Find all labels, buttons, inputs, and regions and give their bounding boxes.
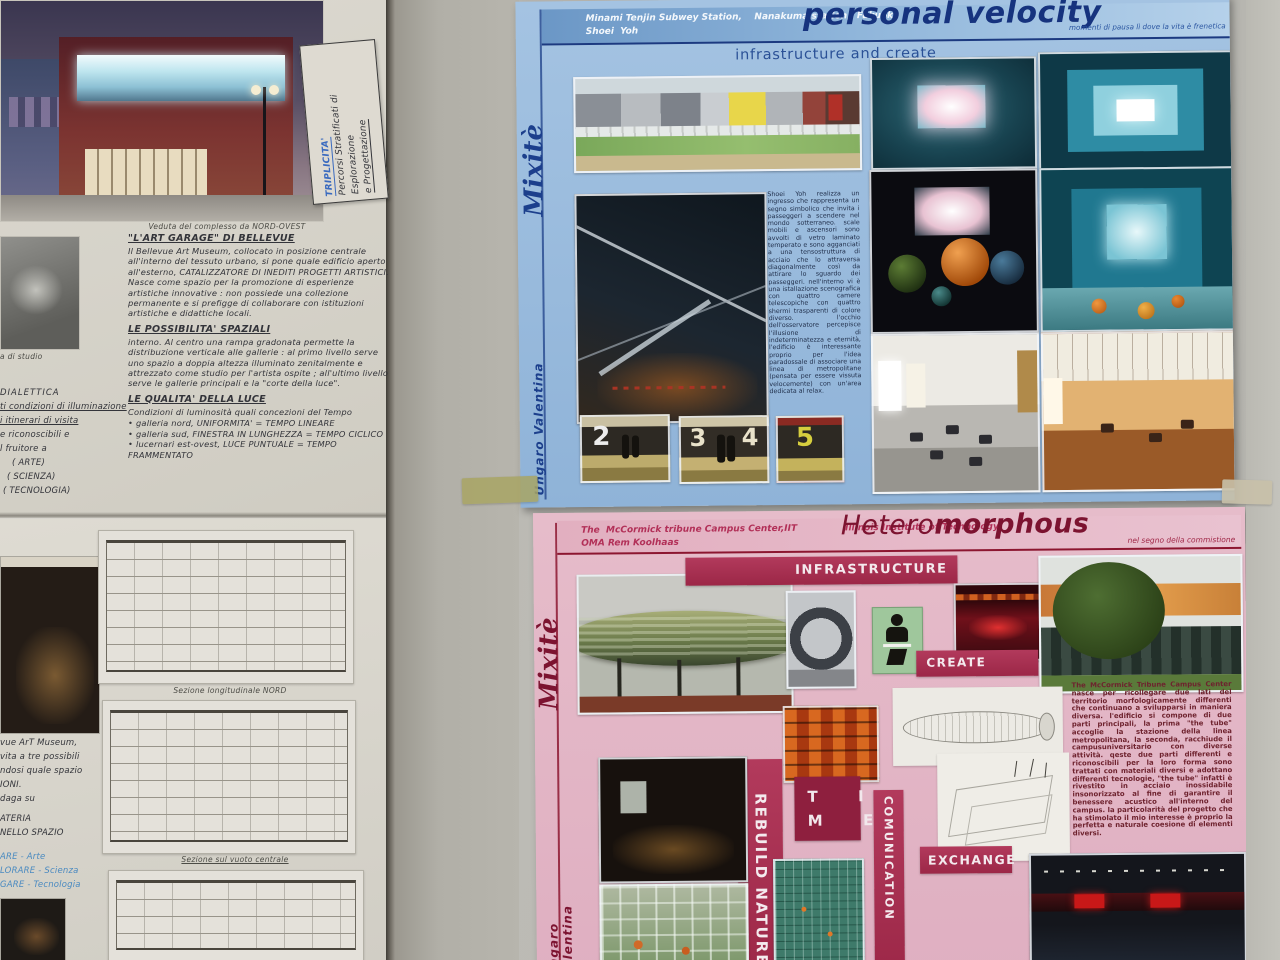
platform-photo-3-4: 3 4: [679, 415, 770, 484]
edge-fragment: i itinerari di visita: [0, 414, 134, 428]
bellevue-photo-caption: Veduta del complesso da NORD-OVEST: [122, 222, 332, 231]
bright-window: [914, 187, 990, 236]
triplicita-note-card: TRIPLICITA' Percorsi Stratificati di Esp…: [299, 39, 389, 205]
chair-silhouette: [1181, 420, 1194, 429]
table-reflections: [612, 824, 734, 874]
corridor-balls-photo: [1039, 166, 1234, 332]
masking-tape-left: [462, 476, 539, 505]
arch-ring: [786, 604, 857, 674]
blue-fragment: ARE - Arte: [0, 850, 120, 864]
platform-photo-5: 5: [776, 415, 845, 483]
orange-detail: [682, 947, 690, 955]
title-bold: morphous: [934, 508, 1089, 540]
person-silhouette: [621, 434, 628, 458]
edge-fragment: DIALETTICA: [0, 386, 134, 400]
orange-sphere: [941, 238, 990, 287]
station-line-2: Shoei Yoh: [586, 26, 639, 37]
bellevue-museum-photo: [0, 0, 324, 222]
tunnel-core: [1116, 99, 1154, 122]
chair-silhouette: [946, 426, 959, 435]
blue-poster: Minami Tenjin Subwey Station, Nanakuma s…: [515, 0, 1234, 508]
comunication-banner: COMUNICATION: [873, 790, 905, 960]
tube-ribs: [579, 616, 791, 659]
board-edge-shadow: [386, 0, 395, 960]
tube-arch-photo: [786, 590, 857, 689]
pictogram-desk: [883, 644, 911, 647]
orange-lounge-photo: [1041, 330, 1235, 492]
notes-para-spazi: interno. Al centro una rampa gradonata p…: [128, 337, 392, 389]
comunication-label: COMUNICATION: [881, 796, 896, 921]
lower-fragment: daga su: [0, 792, 120, 806]
exchange-label: EXCHANGE: [928, 852, 1016, 868]
blue-author-label: Ungaro Valentina: [531, 353, 546, 495]
spheres-installation-photo: [869, 168, 1039, 334]
buildings-row: [575, 91, 859, 129]
platform-number: 5: [796, 423, 814, 453]
notes-heading-art-garage: "L'ART GARAGE" DI BELLEVUE: [128, 233, 392, 244]
wood-wall: [1017, 350, 1037, 413]
museum-interior-photo: [0, 556, 100, 734]
pink-poster: The McCormick tribune Campus Center,IIT …: [533, 507, 1249, 960]
create-label: CREATE: [926, 655, 986, 670]
iit-store-photo: [1029, 852, 1247, 960]
lower-blue-fragments: ARE - Arte LORARE - Scienza GARE - Tecno…: [0, 850, 120, 892]
section-caption-2: Sezione sul vuoto centrale: [125, 855, 345, 864]
sketch-end-cap: [1039, 713, 1055, 741]
street-lamp-pole: [263, 87, 266, 211]
pictogram-head: [891, 614, 903, 626]
notes-bullet-1: galleria nord, UNIFORMITA' = TEMPO LINEA…: [128, 418, 392, 428]
rebuild-nature-label: REBUILD NATURE: [751, 793, 771, 960]
red-glow: [968, 614, 1027, 640]
iit-logo-mark: [1074, 894, 1104, 908]
notes-heading-luce: LE QUALITA' DELLA LUCE: [128, 394, 392, 405]
teal-sphere: [931, 286, 951, 306]
pink-body-text: The McCormick Tribune Campus Center nasc…: [1071, 681, 1232, 852]
glowing-window-photo: [870, 56, 1037, 170]
orange-dot: [828, 931, 833, 936]
project-line-2: OMA Rem Koolhaas: [581, 538, 679, 549]
section-linework: [116, 880, 356, 950]
edge-fragment: l fruitore a: [0, 442, 134, 456]
notes-para-art-garage: Il Bellevue Art Museum, collocato in pos…: [128, 246, 392, 319]
foreground-ground: [576, 153, 860, 171]
board-seam: [0, 512, 388, 519]
chair-silhouette: [969, 457, 982, 466]
sketch-spike: [1014, 761, 1017, 777]
lower-fragment: ndosi quale spazio: [0, 764, 120, 778]
warm-glow: [16, 627, 94, 724]
ground-band: [788, 669, 854, 686]
create-banner: CREATE: [916, 650, 1038, 677]
pink-poster-title: Heteromorphous: [841, 508, 1090, 541]
blue-body-text: Shoei Yoh realizza un ingresso che rappr…: [767, 190, 861, 409]
lamp-globe-right: [269, 85, 279, 95]
ceiling-light-band: [1, 557, 99, 567]
person-silhouette: [632, 436, 639, 458]
title-regular: Hetero: [841, 510, 935, 542]
back-window: [621, 781, 647, 813]
pink-side-label: Mixitè: [533, 555, 564, 710]
pink-header-band: The McCormick tribune Campus Center,IIT …: [557, 515, 1241, 555]
sketch-spike: [1029, 759, 1034, 777]
infrastructure-banner: INFRASTRUCTURE: [685, 555, 957, 585]
project-line-1: The McCormick tribune Campus Center,IIT: [581, 524, 797, 536]
ceiling-lights: [1044, 869, 1231, 873]
edge-fragment: ti condizioni di illuminazione: [0, 400, 134, 414]
time-tile: T I M E: [794, 776, 861, 841]
chair-silhouette: [930, 451, 943, 460]
lower-fragments: vue ArT Museum, vita a tre possibili ndo…: [0, 736, 120, 840]
section-drawing-2: [102, 700, 356, 854]
blue-side-label: Mixitè: [518, 51, 550, 216]
street-ground: [1, 195, 323, 221]
platform-number: 3: [689, 424, 706, 452]
green-sphere: [888, 255, 926, 293]
iit-logo-mark: [1151, 893, 1181, 907]
section-caption-1: Sezione longitudinale NORD: [120, 686, 340, 695]
handwritten-notes: "L'ART GARAGE" DI BELLEVUE Il Bellevue A…: [128, 233, 392, 460]
blue-header-band: Minami Tenjin Subwey Station, Nanakuma s…: [541, 2, 1229, 45]
notes-bullet-3: lucernari est-ovest, LUCE PUNTUALE = TEM…: [128, 439, 392, 460]
section-linework: [106, 540, 346, 672]
edge-fragment: e riconoscibili e: [0, 428, 134, 442]
pictogram-legs: [886, 649, 907, 665]
red-light-band: [1031, 891, 1244, 912]
warm-glow: [14, 918, 59, 955]
lower-fragment: IONI.: [0, 778, 120, 792]
notes-bullet-2: galleria sud, FINESTRA IN LUNGHEZZA = TE…: [128, 429, 392, 439]
bright-window: [918, 85, 986, 129]
lower-fragment: vita a tre possibili: [0, 750, 120, 764]
section-drawing-3: [108, 870, 364, 960]
blue-fragment: LORARE - Scienza: [0, 864, 120, 878]
tree-courtyard-photo: [1038, 554, 1243, 694]
time-line-1: T I: [807, 784, 860, 808]
lamp-globe-left: [251, 85, 261, 95]
person-silhouette: [717, 434, 725, 462]
chair-silhouette: [910, 432, 923, 441]
edge-fragment: ( ARTE): [0, 456, 134, 470]
ceiling-stripe: [956, 594, 1040, 601]
chair-silhouette: [1101, 424, 1114, 433]
person-silhouette: [727, 435, 735, 461]
blue-poster-title: personal velocity: [803, 0, 1102, 33]
pink-poster-tagline: nel segno della commistione: [1128, 535, 1236, 545]
green-media-wall-photo: [773, 858, 865, 960]
greenhouse-photo: [599, 883, 749, 960]
white-lounge-photo: [871, 332, 1041, 494]
light-tunnel-photo: [1038, 50, 1233, 170]
edge-fragment: ( TECNOLOGIA): [0, 484, 134, 498]
chair-silhouette: [979, 435, 992, 444]
lower-fragment: NELLO SPAZIO: [0, 826, 120, 840]
ceiling-grid: [1043, 332, 1233, 381]
orange-dot: [802, 907, 807, 912]
infrastructure-label: INFRASTRUCTURE: [795, 562, 947, 578]
window-glow: [878, 361, 901, 411]
corridor-end-glow: [1106, 204, 1167, 259]
study-model-photo: [0, 236, 80, 350]
escalator-hall-photo: [574, 192, 768, 424]
notes-para-luce: Condizioni di luminosità quali concezion…: [128, 407, 392, 417]
edge-fragment: ( SCIENZA): [0, 470, 134, 484]
tube-building-photo: [577, 573, 794, 715]
sketch-cylinder: [903, 711, 1051, 744]
exchange-banner: EXCHANGE: [920, 846, 1012, 874]
platform-number: 4: [742, 424, 759, 452]
photo-of-presentation-wall: Veduta del complesso da NORD-OVEST TRIPL…: [0, 0, 1280, 960]
blue-sphere: [990, 250, 1024, 284]
orange-detail: [634, 940, 643, 949]
edge-fragments: DIALETTICA ti condizioni di illuminazion…: [0, 386, 134, 498]
blue-poster-tagline: momenti di pausa lì dove la vita è frene…: [1069, 21, 1226, 32]
platform-photo-2: 2: [580, 414, 671, 483]
pink-author-label: Ungaro Valentina: [546, 858, 575, 960]
window-glow: [1043, 378, 1062, 425]
tree-canopy: [1052, 562, 1165, 659]
street-panorama-photo: [573, 74, 862, 173]
pictogram-body: [886, 627, 908, 642]
window-glow: [906, 364, 926, 408]
orange-window-photo: [783, 705, 880, 783]
time-line-2: M E: [808, 808, 861, 832]
red-signage: [828, 95, 842, 121]
dark-interior-photo: [598, 756, 748, 883]
model-caption-fragment: a di studio: [0, 352, 70, 361]
note-card-text: TRIPLICITA' Percorsi Stratificati di Esp…: [309, 41, 379, 203]
lower-fragment: ATERIA: [0, 812, 120, 826]
platform-number: 2: [592, 422, 610, 452]
lower-fragment: vue ArT Museum,: [0, 736, 120, 750]
base-building: [580, 695, 792, 713]
blue-fragment: GARE - Tecnologia: [0, 878, 120, 892]
section-linework: [110, 710, 348, 842]
section-drawing-1: [98, 530, 354, 684]
chair-silhouette: [1148, 433, 1161, 442]
masking-tape-right: [1222, 479, 1273, 504]
corner-interior-photo: [0, 898, 66, 960]
notes-heading-spazi: LE POSSIBILITA' SPAZIALI: [128, 324, 392, 335]
model-highlight: [9, 265, 64, 315]
steel-strut: [574, 222, 768, 325]
